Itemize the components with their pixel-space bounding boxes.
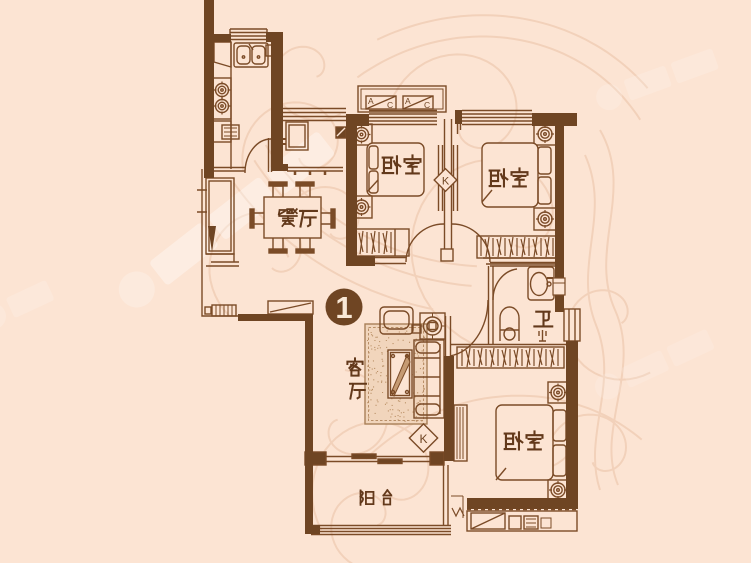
svg-text:A: A bbox=[405, 96, 411, 106]
svg-text:K: K bbox=[442, 176, 450, 188]
svg-text:K: K bbox=[419, 432, 427, 446]
svg-text:C: C bbox=[424, 100, 430, 110]
svg-text:1: 1 bbox=[335, 290, 352, 325]
svg-text:A: A bbox=[368, 96, 374, 106]
svg-text:C: C bbox=[387, 100, 393, 110]
